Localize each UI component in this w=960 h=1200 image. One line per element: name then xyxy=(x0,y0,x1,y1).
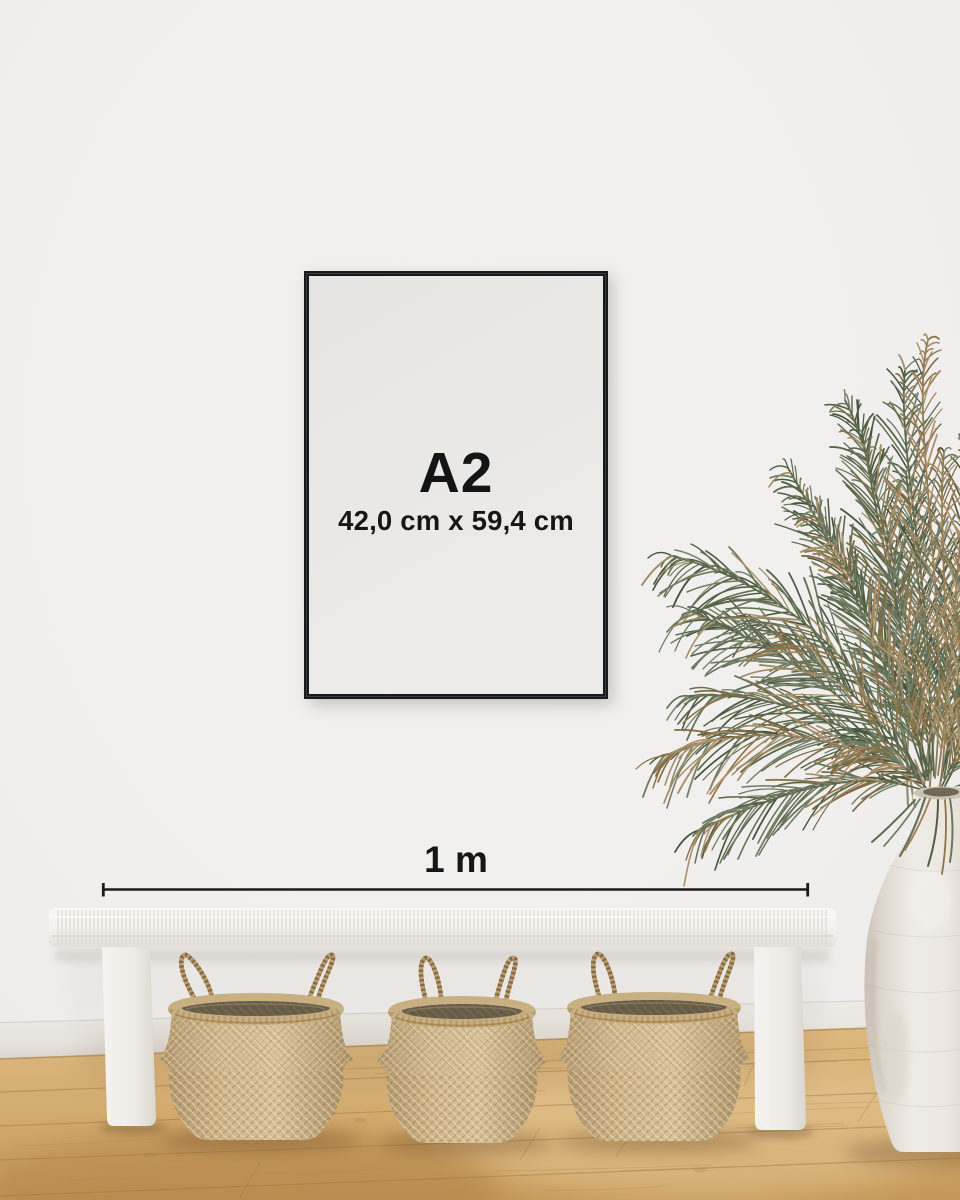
svg-text:A2: A2 xyxy=(419,441,494,505)
svg-text:1 m: 1 m xyxy=(424,839,488,880)
svg-text:42,0 cm x 59,4 cm: 42,0 cm x 59,4 cm xyxy=(338,505,574,536)
